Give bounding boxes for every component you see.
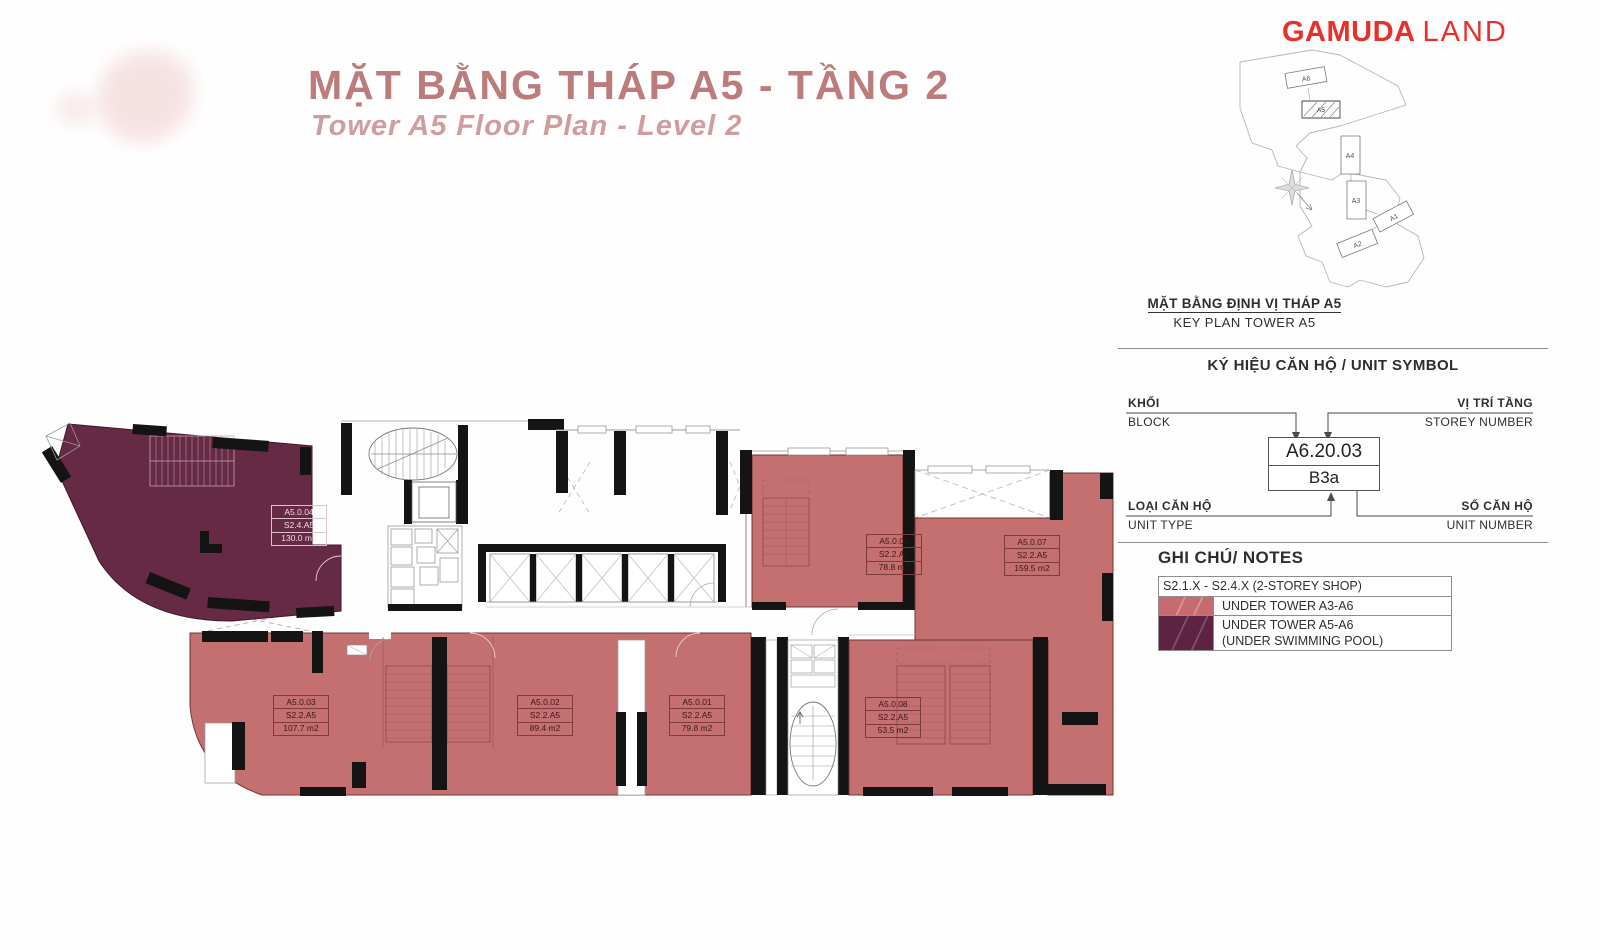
unit-label-A5006: A5.0.06 S2.2.A5 78.8 m2 [866, 535, 922, 575]
unit-area: 107.7 m2 [273, 722, 329, 736]
notes-title: GHI CHÚ/ NOTES [1158, 548, 1303, 568]
unit-label-A5002: A5.0.02 S2.2.A5 89.4 m2 [517, 696, 573, 736]
unit-type: S2.2.A5 [669, 708, 725, 722]
unit-type: S2.2.A5 [1004, 548, 1060, 562]
svg-text:A3: A3 [1352, 198, 1361, 205]
unit-id: A5.0.01 [669, 695, 725, 709]
sample-unit-type: B3a [1269, 466, 1379, 490]
unit-type: S2.2.A5 [866, 547, 922, 561]
notes-row-a3a6: UNDER TOWER A3-A6 [1159, 597, 1451, 616]
unit-id: A5.0.02 [517, 695, 573, 709]
svg-text:A5: A5 [1317, 107, 1325, 114]
legend-swatch-under-tower-a5-a6 [1159, 616, 1214, 650]
unit-area: 89.4 m2 [517, 722, 573, 736]
unit-type: S2.4.A5 [271, 518, 327, 532]
keyplan-map: A6 A5 A4 A3 A1 A2 [1240, 50, 1424, 287]
unit-label-A5003: A5.0.03 S2.2.A5 107.7 m2 [273, 696, 329, 736]
unit-label-A5004: A5.0.04 S2.4.A5 130.0 m2 [271, 506, 327, 546]
legend-label: UNDER TOWER A3-A6 [1214, 597, 1354, 615]
keyplan-building-A4: A4 [1341, 136, 1360, 174]
unit-symbol-sample-box: A6.20.03 B3a [1268, 437, 1380, 491]
unit-symbol-title: KÝ HIỆU CĂN HỘ / UNIT SYMBOL [1118, 357, 1548, 374]
unit-type-label-vi: LOẠI CĂN HỘ [1128, 499, 1212, 513]
unit-id: A5.0.04 [271, 505, 327, 519]
unit-area: 53.5 m2 [865, 724, 921, 738]
compass-icon [1275, 170, 1312, 210]
divider-line [1118, 348, 1548, 349]
keyplan-building-A2: A2 [1337, 229, 1378, 257]
keyplan-building-A1: A1 [1373, 201, 1414, 232]
unit-id: A5.0.06 [866, 534, 922, 548]
keyplan-building-A6: A6 [1285, 67, 1327, 89]
unit-type-label-en: UNIT TYPE [1128, 518, 1193, 532]
svg-text:A4: A4 [1346, 153, 1355, 160]
unit-area: 159.5 m2 [1004, 562, 1060, 576]
elevator-bank [478, 544, 752, 607]
notes-header-row: S2.1.X - S2.4.X (2-STOREY SHOP) [1159, 577, 1451, 597]
block-label-en: BLOCK [1128, 415, 1170, 429]
keyplan-building-A3: A3 [1347, 181, 1366, 219]
unit-label-A5007: A5.0.07 S2.2.A5 159.5 m2 [1004, 536, 1060, 576]
unit-area: 78.8 m2 [866, 561, 922, 575]
notes-row-a5a6: UNDER TOWER A5-A6 (UNDER SWIMMING POOL) [1159, 616, 1451, 650]
unit-label-A5008: A5.0.08 S2.2.A5 53.5 m2 [865, 698, 921, 738]
keyplan-title-vi: MẶT BẰNG ĐỊNH VỊ THÁP A5 [1122, 296, 1367, 313]
unit-type: S2.2.A5 [517, 708, 573, 722]
unit-number-label-en: UNIT NUMBER [1331, 518, 1533, 532]
unit-area: 130.0 m2 [271, 532, 327, 546]
legend-swatch-under-tower-a3-a6 [1159, 597, 1214, 615]
storey-label-vi: VỊ TRÍ TẦNG [1331, 396, 1533, 410]
south-stair-core [766, 637, 849, 795]
notes-legend-table: S2.1.X - S2.4.X (2-STOREY SHOP) UNDER TO… [1158, 576, 1452, 651]
sample-unit-code: A6.20.03 [1269, 438, 1379, 466]
unit-number-label-vi: SỐ CĂN HỘ [1331, 499, 1533, 513]
unit-id: A5.0.07 [1004, 535, 1060, 549]
keyplan-title-en: KEY PLAN TOWER A5 [1122, 315, 1367, 330]
unit-type: S2.2.A5 [865, 710, 921, 724]
block-label-vi: KHỐI [1128, 396, 1160, 410]
divider-line [1118, 542, 1548, 543]
floor-plan-page: MẶT BẰNG THÁP A5 - TẦNG 2 Tower A5 Floor… [0, 0, 1600, 950]
unit-type: S2.2.A5 [273, 708, 329, 722]
unit-id: A5.0.03 [273, 695, 329, 709]
svg-text:A6: A6 [1301, 75, 1311, 83]
legend-label: UNDER TOWER A5-A6 (UNDER SWIMMING POOL) [1214, 616, 1383, 650]
unit-label-A5001: A5.0.01 S2.2.A5 79.8 m2 [669, 696, 725, 736]
storey-label-en: STOREY NUMBER [1331, 415, 1533, 429]
keyplan-building-A5: A5 [1302, 101, 1340, 118]
unit-id: A5.0.08 [865, 697, 921, 711]
void-terrace [915, 466, 1050, 518]
unit-area: 79.8 m2 [669, 722, 725, 736]
